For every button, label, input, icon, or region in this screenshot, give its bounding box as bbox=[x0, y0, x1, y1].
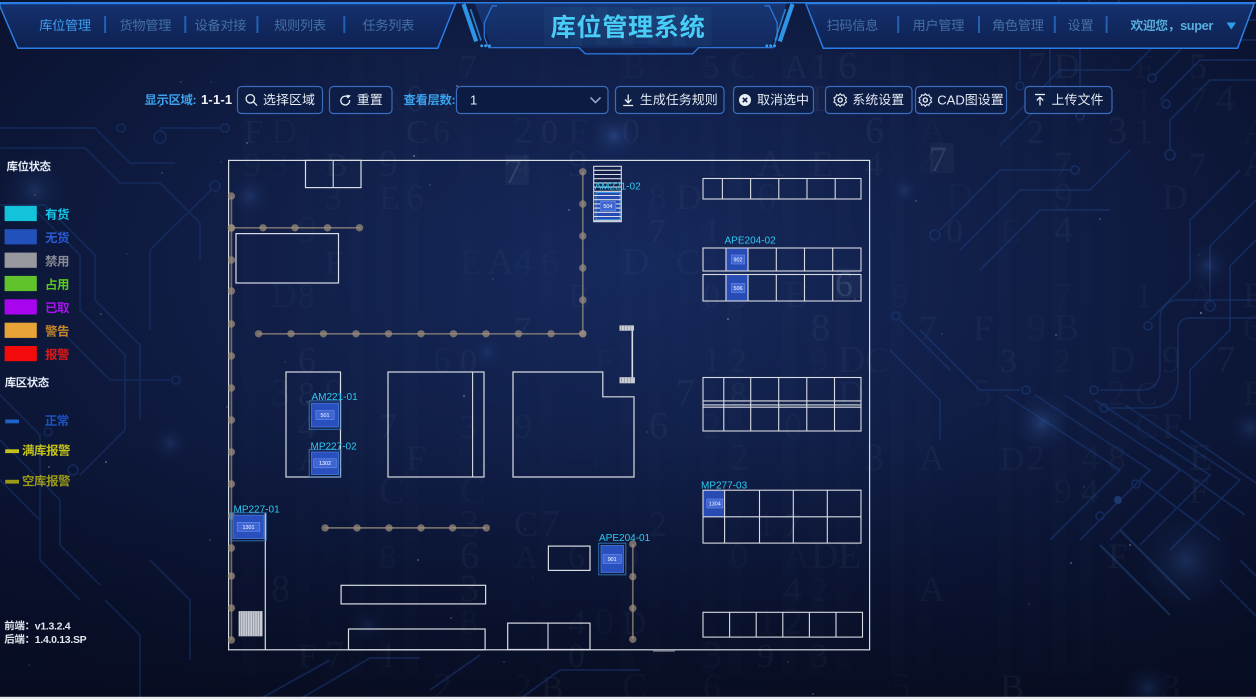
svg-text:6: 6 bbox=[835, 264, 853, 304]
svg-text:7: 7 bbox=[1027, 45, 1046, 87]
svg-text:7: 7 bbox=[504, 151, 522, 191]
svg-text:504: 504 bbox=[603, 204, 612, 210]
svg-text:7: 7 bbox=[460, 49, 477, 86]
svg-text:1-1-1: 1-1-1 bbox=[201, 92, 232, 107]
svg-text:1301: 1301 bbox=[243, 525, 255, 531]
svg-text:3: 3 bbox=[865, 437, 884, 479]
svg-text:B: B bbox=[541, 670, 564, 699]
svg-text:A: A bbox=[1243, 144, 1256, 184]
svg-text:D: D bbox=[271, 111, 297, 151]
svg-text:6: 6 bbox=[433, 114, 450, 151]
svg-text:3: 3 bbox=[1000, 343, 1017, 380]
svg-text:6: 6 bbox=[649, 405, 668, 447]
svg-text:2: 2 bbox=[1027, 114, 1044, 151]
svg-text:E: E bbox=[838, 535, 861, 577]
svg-text:D: D bbox=[676, 177, 702, 217]
svg-text:0: 0 bbox=[595, 601, 614, 643]
svg-text:v1.3.2.4: v1.3.2.4 bbox=[35, 620, 71, 632]
svg-text:6: 6 bbox=[406, 177, 424, 217]
svg-text:5: 5 bbox=[892, 666, 911, 699]
svg-text:1: 1 bbox=[703, 340, 721, 380]
svg-text:A: A bbox=[487, 241, 515, 283]
svg-text:9: 9 bbox=[757, 638, 774, 675]
svg-text:A: A bbox=[514, 539, 539, 576]
svg-text:2: 2 bbox=[730, 437, 749, 479]
svg-text:1: 1 bbox=[470, 93, 477, 108]
svg-text:6: 6 bbox=[757, 176, 776, 218]
svg-text:3: 3 bbox=[460, 409, 477, 446]
svg-text:5: 5 bbox=[703, 49, 720, 86]
svg-text:2: 2 bbox=[433, 666, 452, 699]
svg-text:6: 6 bbox=[838, 45, 857, 87]
svg-text:6: 6 bbox=[1243, 307, 1256, 349]
svg-text:C: C bbox=[622, 666, 647, 699]
svg-text:4: 4 bbox=[1054, 209, 1073, 251]
svg-text:0: 0 bbox=[703, 278, 720, 315]
svg-text:7: 7 bbox=[676, 372, 695, 414]
svg-text:2: 2 bbox=[811, 572, 828, 609]
svg-text:7: 7 bbox=[649, 213, 666, 250]
svg-text:3: 3 bbox=[1108, 110, 1127, 152]
svg-text:1304: 1304 bbox=[709, 502, 721, 508]
svg-text:3: 3 bbox=[271, 372, 290, 414]
svg-text:4: 4 bbox=[514, 241, 533, 283]
svg-text:901: 901 bbox=[608, 557, 617, 563]
svg-text:B: B bbox=[1000, 667, 1024, 699]
svg-text:2: 2 bbox=[514, 667, 532, 699]
svg-text:4: 4 bbox=[568, 602, 586, 642]
svg-text::: : bbox=[452, 93, 456, 107]
svg-text:2: 2 bbox=[514, 110, 533, 152]
svg-text:7: 7 bbox=[1189, 147, 1206, 184]
svg-text:1: 1 bbox=[1135, 275, 1153, 315]
svg-text:A: A bbox=[784, 49, 809, 86]
svg-text:B: B bbox=[784, 274, 809, 316]
svg-text:F: F bbox=[244, 114, 263, 151]
svg-text:4: 4 bbox=[1081, 471, 1099, 511]
svg-text:3: 3 bbox=[271, 147, 288, 184]
svg-text:4: 4 bbox=[865, 144, 883, 184]
svg-text:8: 8 bbox=[271, 568, 290, 610]
svg-text:2: 2 bbox=[703, 406, 721, 446]
svg-text:B: B bbox=[622, 46, 646, 86]
svg-text:D: D bbox=[1000, 441, 1025, 478]
svg-text:super: super bbox=[1180, 18, 1213, 33]
svg-text:D: D bbox=[271, 275, 297, 315]
svg-text:A: A bbox=[919, 438, 945, 478]
svg-text:1: 1 bbox=[379, 635, 397, 675]
svg-text:AM221-01: AM221-01 bbox=[312, 392, 359, 403]
svg-text:E: E bbox=[460, 242, 482, 282]
svg-text:6: 6 bbox=[703, 667, 721, 699]
svg-text:1: 1 bbox=[703, 210, 721, 250]
svg-text:7: 7 bbox=[514, 311, 531, 348]
svg-text:C: C bbox=[514, 504, 538, 544]
svg-text:2: 2 bbox=[1054, 343, 1071, 380]
svg-text:8: 8 bbox=[649, 177, 667, 217]
svg-text:C: C bbox=[406, 114, 429, 151]
svg-text:9: 9 bbox=[892, 278, 909, 315]
svg-text:AM221-02: AM221-02 bbox=[595, 181, 642, 192]
svg-text:D: D bbox=[811, 535, 838, 577]
svg-text:6: 6 bbox=[433, 340, 451, 380]
svg-text:0: 0 bbox=[541, 114, 558, 151]
svg-text:9: 9 bbox=[298, 209, 317, 251]
svg-text:4: 4 bbox=[1216, 78, 1235, 120]
svg-text:F: F bbox=[406, 438, 426, 478]
svg-text:D: D bbox=[622, 241, 649, 283]
svg-text:B: B bbox=[568, 278, 591, 315]
svg-text:7: 7 bbox=[325, 634, 344, 676]
svg-text:APE204-01: APE204-01 bbox=[599, 533, 651, 544]
svg-text:5: 5 bbox=[973, 372, 992, 414]
svg-text:D: D bbox=[1162, 177, 1188, 217]
svg-text::: : bbox=[193, 93, 197, 107]
svg-text:A: A bbox=[919, 569, 945, 609]
svg-text:E: E bbox=[379, 180, 400, 217]
svg-text:9: 9 bbox=[811, 343, 828, 380]
svg-text:9: 9 bbox=[379, 143, 398, 185]
svg-text:0: 0 bbox=[784, 406, 802, 446]
svg-text:2: 2 bbox=[649, 504, 667, 544]
svg-text:F: F bbox=[325, 245, 344, 282]
svg-text:9: 9 bbox=[514, 406, 532, 446]
svg-text:APE204-02: APE204-02 bbox=[725, 236, 777, 247]
svg-text:1.4.0.13.SP: 1.4.0.13.SP bbox=[35, 634, 87, 646]
svg-text:9: 9 bbox=[568, 143, 587, 185]
svg-text:8: 8 bbox=[379, 539, 396, 576]
svg-text:902: 902 bbox=[734, 258, 743, 264]
svg-text:1302: 1302 bbox=[319, 461, 331, 467]
svg-text:2: 2 bbox=[1108, 373, 1126, 413]
svg-text:8: 8 bbox=[460, 602, 478, 642]
svg-text:9: 9 bbox=[1027, 307, 1046, 349]
svg-text:B: B bbox=[325, 147, 348, 184]
svg-text:7: 7 bbox=[541, 503, 560, 545]
svg-text:MP227-01: MP227-01 bbox=[234, 504, 281, 515]
svg-text:3: 3 bbox=[811, 638, 828, 675]
svg-text:0: 0 bbox=[946, 213, 963, 250]
svg-text:6: 6 bbox=[541, 242, 559, 282]
svg-text:7: 7 bbox=[929, 139, 947, 179]
svg-text:1: 1 bbox=[1135, 111, 1153, 151]
svg-text:501: 501 bbox=[321, 413, 330, 419]
svg-text:MP227-02: MP227-02 bbox=[311, 442, 358, 453]
svg-text:C: C bbox=[379, 470, 404, 512]
svg-text:CAD: CAD bbox=[937, 92, 964, 107]
svg-text:D: D bbox=[946, 176, 973, 218]
svg-text:C: C bbox=[865, 340, 889, 380]
svg-text:F: F bbox=[595, 343, 614, 380]
svg-text:506: 506 bbox=[734, 286, 743, 292]
svg-text:7: 7 bbox=[1216, 339, 1235, 381]
svg-text:C: C bbox=[676, 242, 700, 282]
svg-text:6: 6 bbox=[298, 340, 316, 380]
svg-text:9: 9 bbox=[1054, 471, 1072, 511]
svg-text:2: 2 bbox=[730, 343, 747, 380]
svg-text:F: F bbox=[973, 308, 993, 348]
svg-text:MP277-03: MP277-03 bbox=[701, 480, 748, 491]
svg-text:0: 0 bbox=[730, 536, 748, 576]
